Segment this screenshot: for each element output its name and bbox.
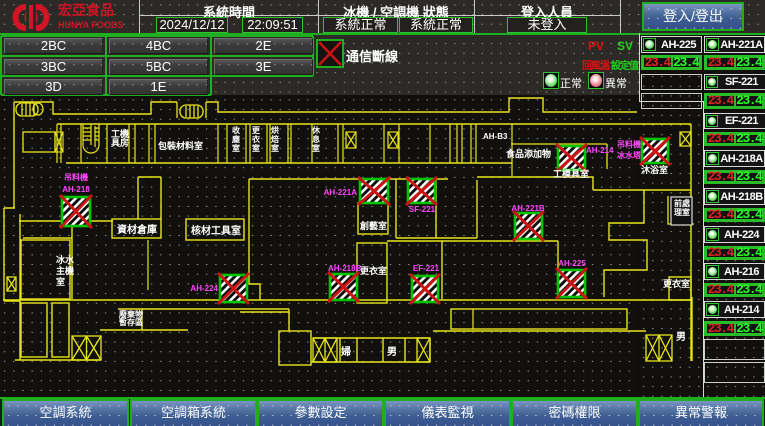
svg-text:AH-218: AH-218 <box>62 185 90 194</box>
svg-text:婦: 婦 <box>340 345 351 358</box>
svg-text:工具: 工具 <box>110 129 120 148</box>
svg-text:吊料機: 吊料機 <box>64 172 88 182</box>
svg-text:吊料機: 吊料機 <box>617 139 641 149</box>
svg-text:更衣室: 更衣室 <box>663 278 690 289</box>
svg-text:冰水塔: 冰水塔 <box>617 150 642 160</box>
svg-text:工模具室: 工模具室 <box>553 168 589 179</box>
svg-text:資材倉庫: 資材倉庫 <box>117 223 157 236</box>
svg-text:AH-214: AH-214 <box>586 146 614 155</box>
svg-text:AH-218B: AH-218B <box>328 264 362 273</box>
svg-text:暫存區: 暫存區 <box>119 317 143 327</box>
svg-text:男: 男 <box>676 331 686 343</box>
svg-text:機房: 機房 <box>120 128 129 148</box>
svg-text:前處理室: 前處理室 <box>674 198 691 217</box>
svg-text:收塵室: 收塵室 <box>232 125 240 153</box>
svg-text:SF-221: SF-221 <box>409 205 436 214</box>
svg-text:更衣室: 更衣室 <box>252 125 261 153</box>
svg-text:創藝室: 創藝室 <box>359 220 387 231</box>
svg-text:AH-221B: AH-221B <box>511 204 545 213</box>
svg-text:沐浴室: 沐浴室 <box>641 164 668 175</box>
svg-text:核材工具室: 核材工具室 <box>191 224 241 237</box>
svg-text:冰水: 冰水 <box>56 254 75 265</box>
svg-text:包裝材料室: 包裝材料室 <box>157 140 203 151</box>
svg-text:AH-B3: AH-B3 <box>483 132 508 141</box>
svg-text:食品添加物: 食品添加物 <box>505 148 551 159</box>
svg-text:烘焙室: 烘焙室 <box>270 125 279 153</box>
svg-text:主機: 主機 <box>56 265 74 276</box>
svg-text:更衣室: 更衣室 <box>360 265 387 276</box>
svg-text:EF-221: EF-221 <box>413 264 440 273</box>
svg-text:AH-221A: AH-221A <box>324 188 358 197</box>
svg-text:休息室: 休息室 <box>311 125 321 153</box>
svg-text:AH-225: AH-225 <box>558 259 586 268</box>
svg-text:男: 男 <box>387 346 397 358</box>
svg-text:AH-224: AH-224 <box>190 284 218 293</box>
svg-text:室: 室 <box>56 276 65 287</box>
